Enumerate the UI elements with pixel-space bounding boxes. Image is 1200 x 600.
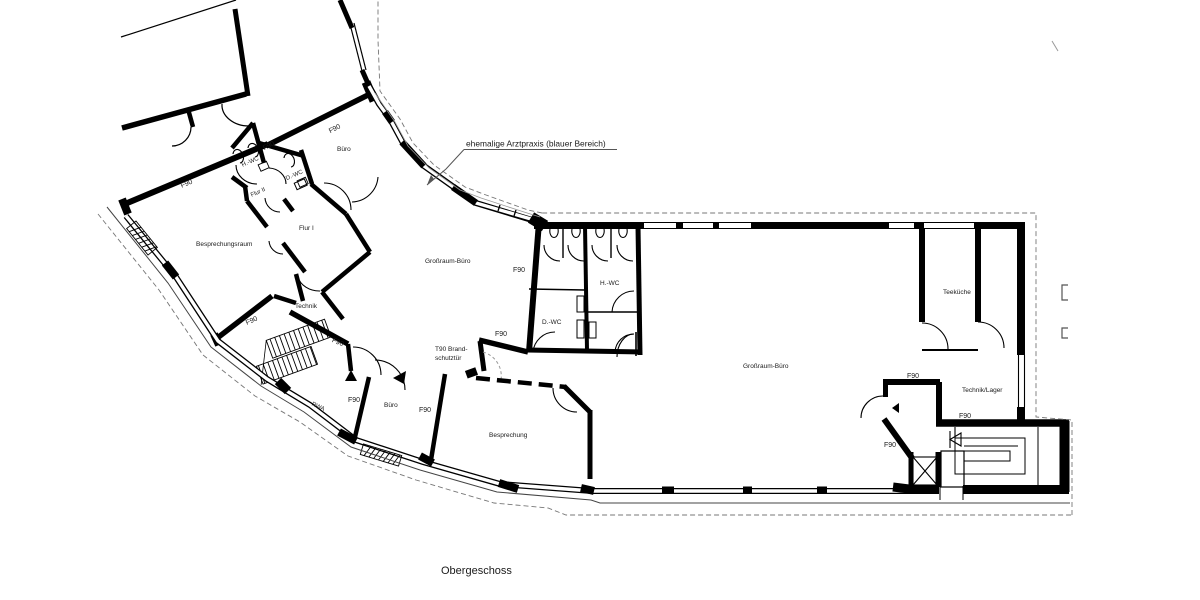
svg-text:Technik/Lager: Technik/Lager	[962, 387, 1003, 394]
svg-text:F90: F90	[884, 442, 896, 449]
svg-text:T90 Brand-: T90 Brand-	[435, 346, 468, 353]
svg-text:Obergeschoss: Obergeschoss	[441, 565, 512, 577]
svg-text:Großraum-Büro: Großraum-Büro	[743, 363, 789, 370]
svg-text:Besprechungsraum: Besprechungsraum	[196, 241, 252, 248]
svg-text:Teeküche: Teeküche	[943, 289, 971, 296]
svg-text:Büro: Büro	[384, 402, 398, 409]
svg-text:Besprechung: Besprechung	[489, 432, 528, 439]
svg-text:Großraum-Büro: Großraum-Büro	[425, 258, 471, 265]
svg-text:ehemalige Arztpraxis (blauer B: ehemalige Arztpraxis (blauer Bereich)	[466, 139, 606, 149]
svg-text:Büro: Büro	[337, 146, 351, 153]
svg-text:F90: F90	[495, 331, 507, 338]
svg-text:Flur I: Flur I	[299, 225, 314, 232]
svg-text:D.-WC: D.-WC	[542, 319, 562, 326]
svg-text:F90: F90	[907, 373, 919, 380]
svg-text:F90: F90	[513, 267, 525, 274]
svg-text:F90: F90	[419, 407, 431, 414]
svg-text:F90: F90	[959, 413, 971, 420]
svg-text:H.-WC: H.-WC	[600, 280, 620, 287]
svg-text:Technik: Technik	[295, 303, 318, 310]
svg-text:F90: F90	[348, 397, 360, 404]
svg-text:schutztür: schutztür	[435, 355, 462, 362]
